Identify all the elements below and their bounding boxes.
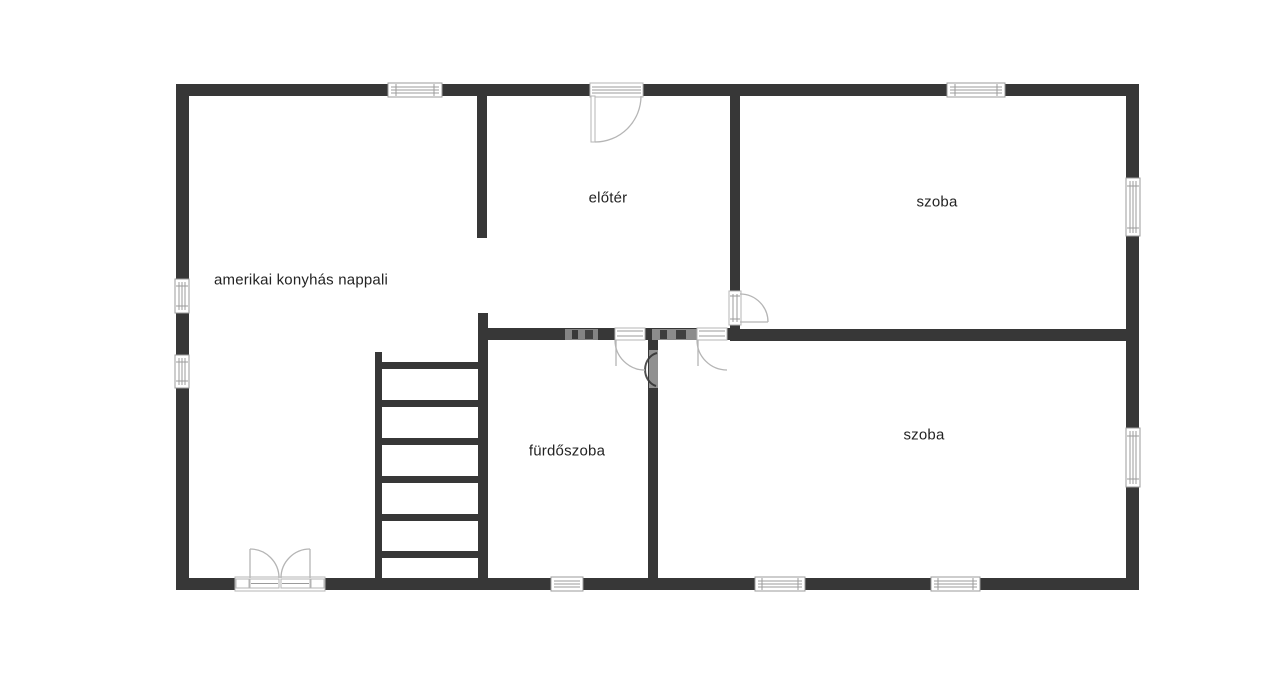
door-hallway-room <box>729 291 768 325</box>
watermark-mark <box>652 329 698 340</box>
stair-tread <box>375 438 479 445</box>
room-label-hallway: előtér <box>589 190 628 207</box>
rooms-divider-wall <box>730 329 1126 341</box>
room-label-living-room: amerikai konyhás nappali <box>214 272 388 289</box>
watermark-mark <box>676 330 686 339</box>
room-label-room-bottom: szoba <box>903 427 944 444</box>
staircase <box>375 352 479 578</box>
room-label-bathroom: fürdőszoba <box>529 443 605 460</box>
window-bathroom <box>551 577 583 591</box>
room-label-room-top: szoba <box>916 194 957 211</box>
watermark-mark <box>572 330 578 339</box>
door-double-living-room <box>235 549 325 591</box>
window-top-2 <box>947 83 1005 97</box>
window-right-1 <box>1126 178 1140 236</box>
window-right-2 <box>1126 428 1140 487</box>
stair-side-wall <box>478 313 488 578</box>
floor-plan-drawing <box>0 0 1280 681</box>
window-left-2 <box>175 355 189 388</box>
outer-wall-left <box>176 84 189 590</box>
stair-tread <box>375 551 479 558</box>
outer-wall-right <box>1126 84 1139 590</box>
watermark-mark <box>565 329 598 340</box>
hallway-left-wall <box>477 95 487 238</box>
door-bottom-room <box>697 328 727 370</box>
floor-plan: amerikai konyhás nappali előtér szoba fü… <box>0 0 1280 681</box>
door-bathroom <box>615 328 645 370</box>
window-top-1 <box>388 83 442 97</box>
stair-tread <box>375 476 479 483</box>
watermark-mark <box>585 330 593 339</box>
watermark-mark <box>660 330 667 339</box>
stair-tread <box>375 362 479 369</box>
window-left-1 <box>175 279 189 313</box>
window-bottom-3 <box>931 577 980 591</box>
stair-tread <box>375 514 479 521</box>
window-bottom-2 <box>755 577 805 591</box>
stair-rail <box>375 352 382 578</box>
hallway-bottom-wall-3 <box>727 328 740 340</box>
stair-tread <box>375 400 479 407</box>
hallway-right-wall <box>730 95 740 292</box>
door-hallway-top <box>590 83 643 142</box>
